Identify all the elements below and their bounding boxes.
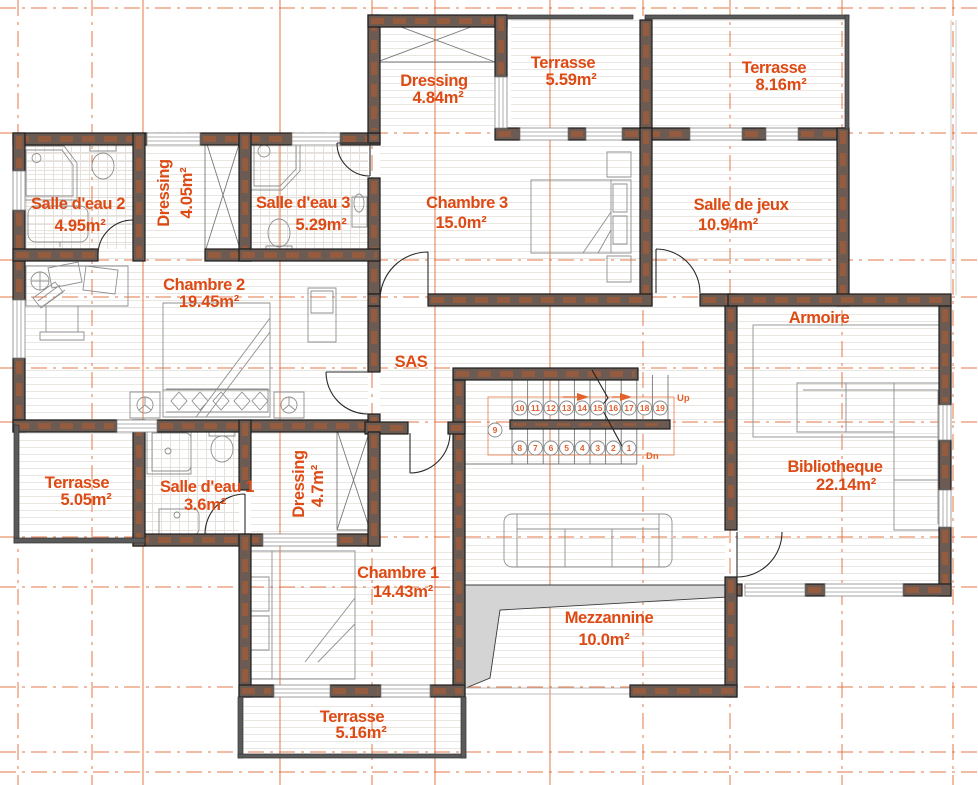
window xyxy=(147,133,200,145)
stair-step-number: 1 xyxy=(627,443,632,453)
ceiling-symbol-chambre-2 xyxy=(31,272,49,290)
label-dressing-484-name: Dressing xyxy=(400,72,467,90)
stair-step-marker: 17 xyxy=(622,401,636,415)
window xyxy=(939,490,951,527)
wall-segment xyxy=(133,420,145,546)
stair-step-number: 13 xyxy=(562,403,572,413)
terrace-wall-segment xyxy=(238,697,243,758)
stair-step-number: 2 xyxy=(611,443,616,453)
stair-step-marker: 4 xyxy=(575,441,589,455)
stair-step-marker: 1 xyxy=(622,441,636,455)
floor-area xyxy=(737,306,939,584)
label-chambre-3-area: 15.0m² xyxy=(435,214,487,232)
stair-step-marker: 9 xyxy=(488,423,502,437)
stair-step-number: 5 xyxy=(564,443,569,453)
stair-step-marker: 19 xyxy=(653,401,667,415)
window xyxy=(766,128,798,140)
label-dressing-47-area: 4.7m² xyxy=(309,464,327,507)
label-salle-eau-3-name: Salle d'eau 3 xyxy=(256,194,350,212)
stair-step-number: 15 xyxy=(593,403,603,413)
stair-step-number: 8 xyxy=(517,443,522,453)
terrace-wall-segment xyxy=(507,15,633,19)
label-terrasse-505-area: 5.05m² xyxy=(60,491,112,509)
window xyxy=(381,685,430,697)
stair-step-number: 19 xyxy=(655,403,665,413)
label-dressing-405-area: 4.05m² xyxy=(178,167,196,219)
stair-step-marker: 5 xyxy=(560,441,574,455)
label-salle-de-jeux-area: 10.94m² xyxy=(698,216,759,234)
window xyxy=(745,584,805,596)
terrace-wall-segment xyxy=(461,697,466,758)
terrace-wall-segment xyxy=(845,15,849,129)
terrace-wall-segment xyxy=(645,15,849,19)
label-mezzannine-name: Mezzannine xyxy=(565,609,654,627)
window xyxy=(13,300,25,358)
floor-plan: Up Dn 10111213141516171819876543219 Sall… xyxy=(0,0,978,785)
label-terrasse-816-area: 8.16m² xyxy=(755,76,807,94)
window xyxy=(520,128,568,140)
stair-step-number: 18 xyxy=(640,403,650,413)
stair-step-marker: 12 xyxy=(544,401,558,415)
label-dressing-405-name: Dressing xyxy=(155,159,173,226)
window xyxy=(825,584,903,596)
label-mezzannine-area: 10.0m² xyxy=(578,631,630,649)
stair-step-marker: 10 xyxy=(513,401,527,415)
label-salle-de-jeux-name: Salle de jeux xyxy=(694,196,790,214)
label-salle-eau-3-area: 5.29m² xyxy=(295,216,347,234)
floor-area xyxy=(380,434,453,534)
stair-step-marker: 14 xyxy=(575,401,589,415)
label-salle-eau-1-name: Salle d'eau 1 xyxy=(160,478,254,496)
label-salle-eau-2-area: 4.95m² xyxy=(54,217,106,235)
label-dressing-484-area: 4.84m² xyxy=(412,89,464,107)
label-salle-eau-1-area: 3.6m² xyxy=(184,496,227,514)
label-chambre-3-name: Chambre 3 xyxy=(426,194,508,212)
window xyxy=(586,128,622,140)
label-armoire-name: Armoire xyxy=(789,309,850,327)
stairs-down-label: Dn xyxy=(646,451,659,462)
stair-step-marker: 2 xyxy=(606,441,620,455)
label-bibliotheque-area: 22.14m² xyxy=(816,476,877,494)
label-sas-name: SAS xyxy=(395,353,428,371)
stair-step-marker: 7 xyxy=(528,441,542,455)
terrace-wall-segment xyxy=(14,425,19,543)
label-terrasse-505-name: Terrasse xyxy=(45,474,110,492)
label-terrasse-816-name: Terrasse xyxy=(742,59,807,77)
stair-step-number: 7 xyxy=(533,443,538,453)
stair-step-number: 3 xyxy=(595,443,600,453)
stair-step-marker: 11 xyxy=(528,401,542,415)
window xyxy=(690,128,742,140)
label-terrasse-559-name: Terrasse xyxy=(531,54,596,72)
label-chambre-1-area: 14.43m² xyxy=(373,583,434,601)
terrace-wall-segment xyxy=(14,538,145,543)
stair-step-number: 17 xyxy=(624,403,634,413)
window xyxy=(939,405,951,440)
stair-step-number: 16 xyxy=(609,403,619,413)
mezzanine-open-edge xyxy=(465,688,630,694)
stair-step-marker: 16 xyxy=(606,401,620,415)
label-chambre-2-area: 19.45m² xyxy=(179,293,240,311)
window xyxy=(292,133,340,145)
floor-area xyxy=(380,140,640,294)
stair-step-number: 4 xyxy=(580,443,585,453)
stair-step-number: 9 xyxy=(493,425,498,435)
stair-step-number: 10 xyxy=(515,403,525,413)
stairs-up-label: Up xyxy=(677,393,690,404)
stair-step-number: 11 xyxy=(531,403,540,413)
window xyxy=(117,420,157,432)
label-chambre-1-name: Chambre 1 xyxy=(357,564,439,582)
label-terrasse-516-area: 5.16m² xyxy=(335,724,387,742)
stair-step-marker: 13 xyxy=(560,401,574,415)
wall-segment xyxy=(239,133,251,261)
wall-segment xyxy=(133,133,145,261)
stair-step-number: 6 xyxy=(549,443,554,453)
label-chambre-2-name: Chambre 2 xyxy=(163,276,245,294)
window xyxy=(495,77,507,128)
label-bibliotheque-name: Bibliotheque xyxy=(787,458,882,476)
stair-step-number: 12 xyxy=(546,403,556,413)
terrace-wall-segment xyxy=(238,754,466,758)
label-dressing-47-name: Dressing xyxy=(290,450,308,517)
stair-step-number: 14 xyxy=(577,403,587,413)
stair-step-marker: 8 xyxy=(513,441,527,455)
label-terrasse-559-area: 5.59m² xyxy=(545,71,597,89)
window xyxy=(274,685,330,697)
floor-plan-canvas: Up Dn 10111213141516171819876543219 Sall… xyxy=(0,0,978,785)
window xyxy=(13,171,25,210)
label-salle-eau-2-name: Salle d'eau 2 xyxy=(31,195,125,213)
stair-step-marker: 3 xyxy=(591,441,605,455)
stair-step-marker: 18 xyxy=(638,401,652,415)
stair-step-marker: 15 xyxy=(591,401,605,415)
window xyxy=(263,534,337,546)
stair-step-marker: 6 xyxy=(544,441,558,455)
